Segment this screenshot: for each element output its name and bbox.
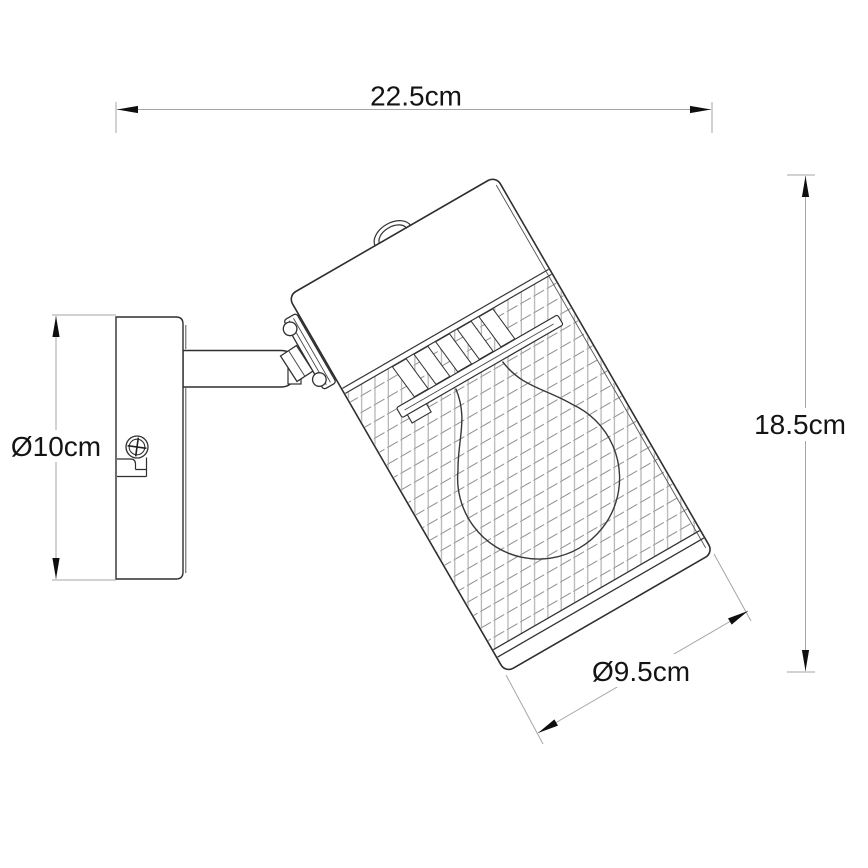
dimension-overall-height: 18.5cm <box>752 175 850 672</box>
dimension-label-shade-diameter: Ø9.5cm <box>592 656 690 687</box>
dimension-label-height: 18.5cm <box>754 409 846 440</box>
mounting-screw <box>126 436 148 458</box>
dimension-label-plate-diameter: Ø10cm <box>11 431 101 462</box>
lamp-dimension-diagram: 22.5cm 18.5cm Ø10cm Ø9.5cm <box>0 0 868 868</box>
dimension-overall-width: 22.5cm <box>116 81 712 134</box>
lamp-shade <box>263 165 713 683</box>
wall-mount-plate <box>116 317 186 579</box>
dimension-diagram-page: 22.5cm 18.5cm Ø10cm Ø9.5cm <box>0 0 868 868</box>
dimension-plate-diameter: Ø10cm <box>11 315 116 580</box>
dimension-label-width: 22.5cm <box>370 81 462 112</box>
swivel-arm <box>183 351 296 388</box>
